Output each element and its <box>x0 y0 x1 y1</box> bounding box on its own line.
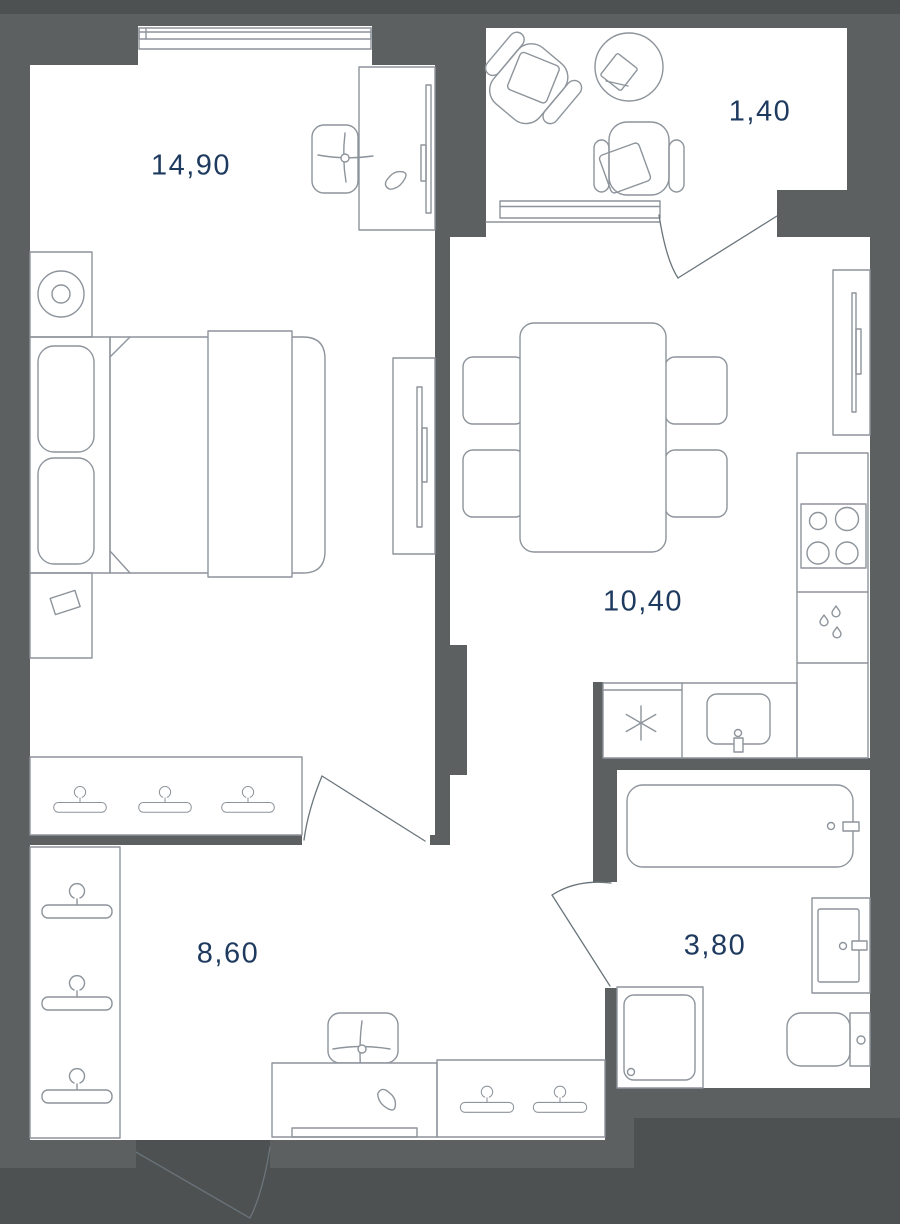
balcony-floor <box>486 28 847 190</box>
room-label-bathroom: 3,80 <box>684 930 746 963</box>
bedroom-door-opening <box>302 835 430 845</box>
room-label-bedroom: 14,90 <box>151 150 231 183</box>
wall-bedroom-kitchen-pier <box>435 645 467 775</box>
floor-plan-drawing <box>0 0 900 1224</box>
hallway-desk <box>272 1063 437 1137</box>
balcony-door-passage <box>660 190 777 237</box>
wall-kitchen-counter-left <box>593 682 603 758</box>
blanket <box>208 331 292 577</box>
wall-bathroom-left-lower <box>605 988 617 1140</box>
pillow-icon <box>38 346 94 452</box>
corridor-floor <box>450 758 593 845</box>
bathroom-door-opening <box>593 882 617 988</box>
pillow-icon <box>38 458 94 564</box>
wall-bathroom-left-upper <box>593 758 617 882</box>
balcony-window-band <box>486 190 660 237</box>
room-label-kitchen-living: 10,40 <box>603 586 683 619</box>
room-label-hallway: 8,60 <box>197 938 259 971</box>
room-label-balcony: 1,40 <box>729 96 791 129</box>
floor-plan: 14,90 1,40 10,40 8,60 3,80 <box>0 0 900 1224</box>
